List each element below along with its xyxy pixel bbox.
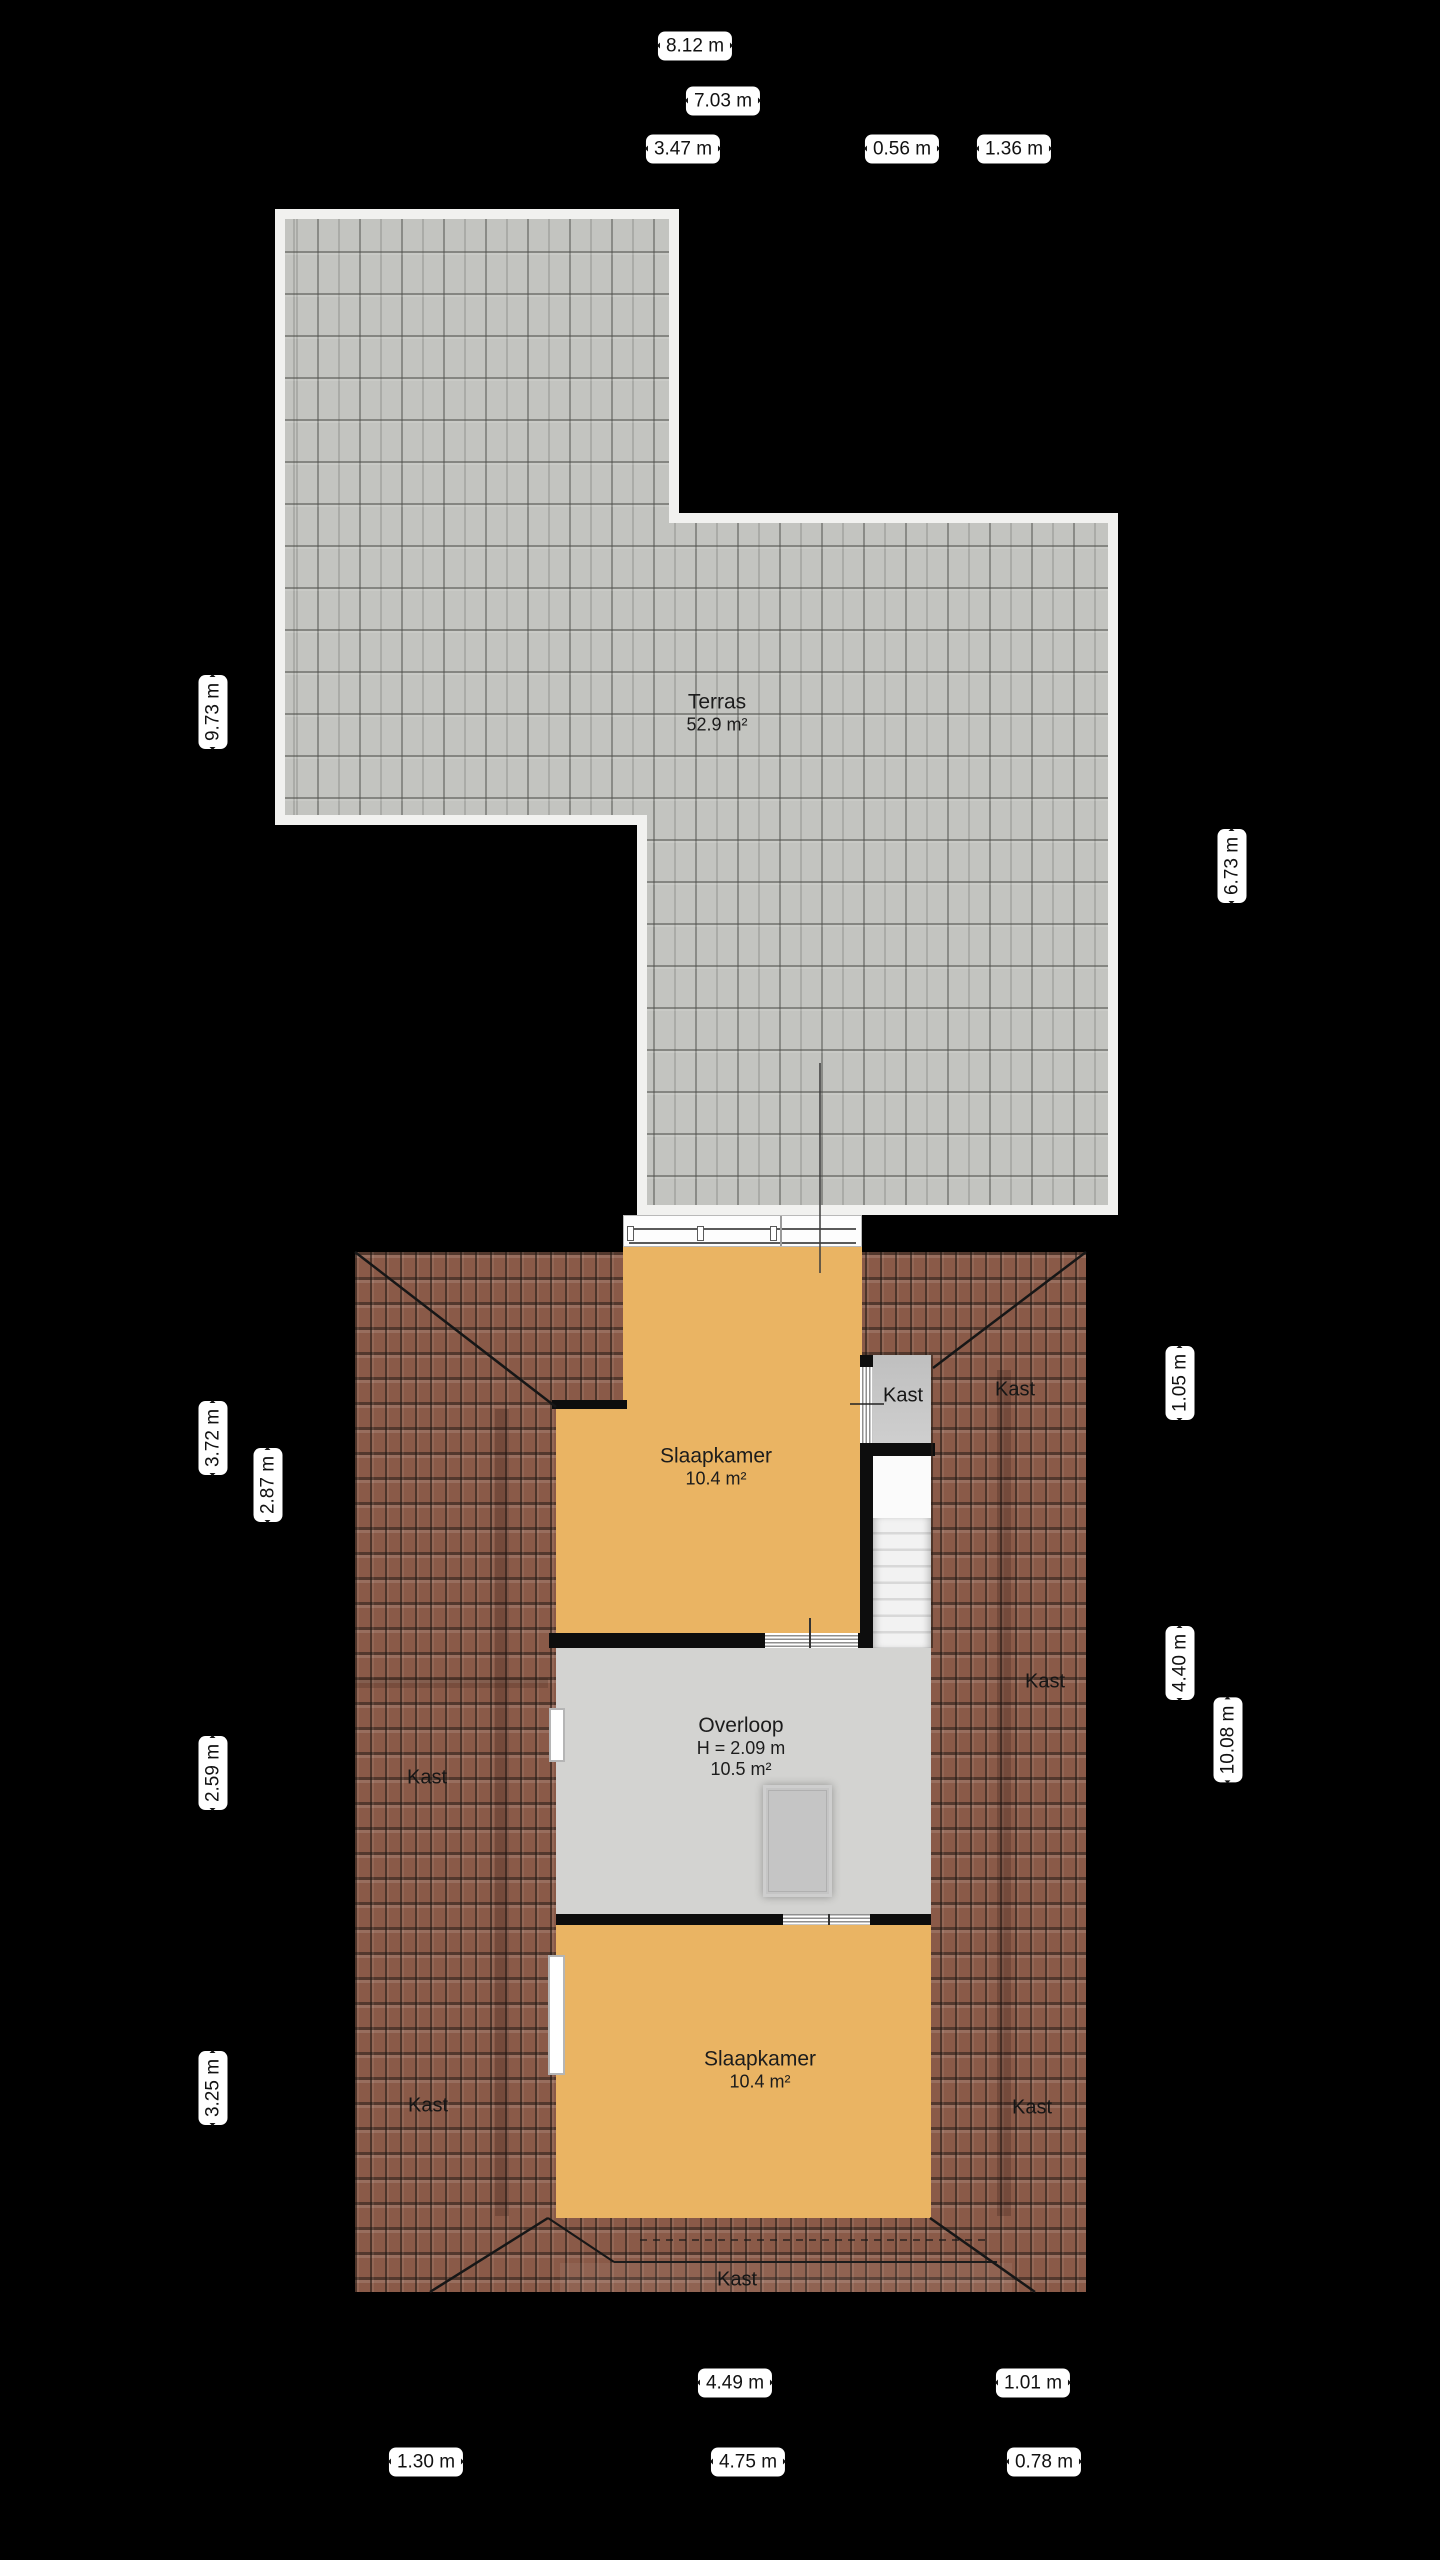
dimension-label: 3.47 m (646, 135, 720, 164)
dimension-label: 0.78 m (1007, 2448, 1081, 2477)
closet-label: Kast (1012, 2097, 1052, 2120)
dimension-label: 2.87 m (254, 1448, 283, 1522)
overloop-height: H = 2.09 m (697, 1738, 786, 1759)
closet-label: Kast (408, 2095, 448, 2118)
dimension-label: 1.01 m (996, 2369, 1070, 2398)
room-label-bedroom2: Slaapkamer 10.4 m² (704, 2048, 816, 2093)
dimension-label: 4.49 m (698, 2369, 772, 2398)
floorplan-canvas: Terras 52.9 m² Slaapkamer 10.4 m² Overlo… (0, 0, 1440, 2560)
terras-area: 52.9 m² (686, 715, 747, 736)
dimension-label: 3.72 m (199, 1401, 228, 1475)
dimension-label: 1.05 m (1166, 1346, 1195, 1420)
dimension-label: 6.73 m (1218, 829, 1247, 903)
dimension-label: 1.36 m (977, 135, 1051, 164)
bedroom2-area: 10.4 m² (704, 2072, 816, 2093)
closet-label: Kast (883, 1385, 923, 1408)
roof-fold-right (997, 1370, 1011, 2216)
dimension-label: 1.30 m (389, 2448, 463, 2477)
dimension-label: 3.25 m (199, 2051, 228, 2125)
balcony-door-frame (629, 1228, 856, 1244)
bedroom1-name: Slaapkamer (660, 1445, 772, 1469)
dimension-label: 0.56 m (865, 135, 939, 164)
bedroom1-area: 10.4 m² (660, 1469, 772, 1490)
door-mullion (627, 1226, 634, 1241)
bedroom2-name: Slaapkamer (704, 2048, 816, 2072)
bedroom2-window (548, 1955, 565, 2075)
terras-name: Terras (686, 691, 747, 715)
bedroom1-upper-part (623, 1247, 862, 1409)
dimension-label: 4.40 m (1166, 1626, 1195, 1700)
wall (860, 1443, 873, 1649)
bedroom1-main-part (556, 1407, 862, 1637)
overloop-name: Overloop (697, 1714, 786, 1738)
landing-window (549, 1708, 565, 1762)
balcony-door (623, 1215, 862, 1247)
landing-floor-opening (763, 1785, 832, 1897)
room-label-terras: Terras 52.9 m² (686, 691, 747, 736)
room-label-bedroom1: Slaapkamer 10.4 m² (660, 1445, 772, 1490)
dimension-label: 10.08 m (1214, 1698, 1243, 1783)
dimension-label: 8.12 m (658, 32, 732, 61)
roof-fold-left (495, 1409, 509, 2216)
door-bedroom1-to-closet (860, 1367, 873, 1443)
dimension-label: 2.59 m (199, 1736, 228, 1810)
roof-fold-horizontal (355, 1678, 548, 1688)
wall (860, 1355, 873, 1367)
dimension-label: 9.73 m (199, 675, 228, 749)
stairs-steps (873, 1518, 931, 1648)
dimension-label: 4.75 m (711, 2448, 785, 2477)
closet-label: Kast (995, 1379, 1035, 1402)
closet-label: Kast (717, 2269, 757, 2292)
stairs-landing (873, 1456, 931, 1518)
dimension-label: 7.03 m (686, 87, 760, 116)
door-mullion (697, 1226, 704, 1241)
wall (552, 1400, 627, 1409)
closet-label: Kast (407, 1767, 447, 1790)
room-label-overloop: Overloop H = 2.09 m 10.5 m² (697, 1714, 786, 1780)
roof-closet-strip (560, 2263, 1012, 2292)
overloop-area: 10.5 m² (697, 1759, 786, 1780)
landing-area (556, 1648, 931, 1914)
door-mullion (770, 1226, 777, 1241)
closet-label: Kast (1025, 1671, 1065, 1694)
door-bedroom1-to-landing (765, 1633, 858, 1648)
door-seam (780, 1216, 782, 1246)
